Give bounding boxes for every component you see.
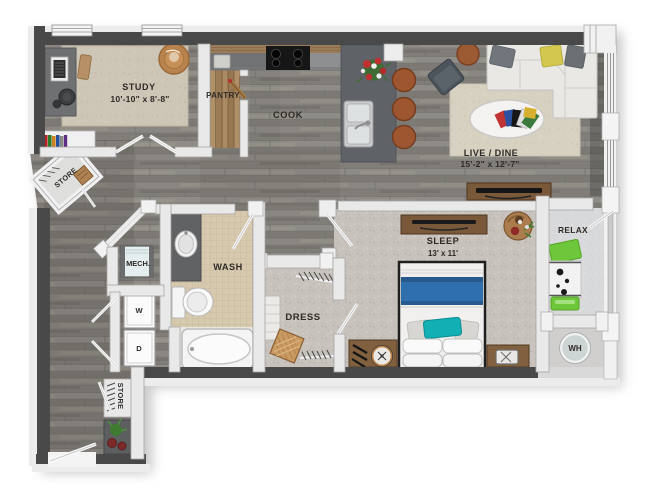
svg-text:SLEEP: SLEEP [427,236,460,246]
svg-text:W: W [135,306,143,315]
svg-text:15'-2" x 12'-7": 15'-2" x 12'-7" [460,159,519,169]
svg-text:LIVE / DINE: LIVE / DINE [464,148,518,158]
svg-text:D: D [136,344,142,353]
svg-text:STORE: STORE [116,383,125,410]
svg-text:COOK: COOK [273,110,303,120]
svg-text:13' x 11': 13' x 11' [428,249,458,258]
svg-text:10'-10" x 8'-8": 10'-10" x 8'-8" [110,94,169,104]
svg-text:RELAX: RELAX [558,225,588,235]
svg-text:WASH: WASH [213,262,243,272]
svg-text:DRESS: DRESS [285,312,320,323]
svg-text:PANTRY: PANTRY [206,91,240,100]
svg-text:WH: WH [568,344,582,353]
svg-text:STUDY: STUDY [122,82,156,92]
svg-text:MECH.: MECH. [126,259,150,268]
